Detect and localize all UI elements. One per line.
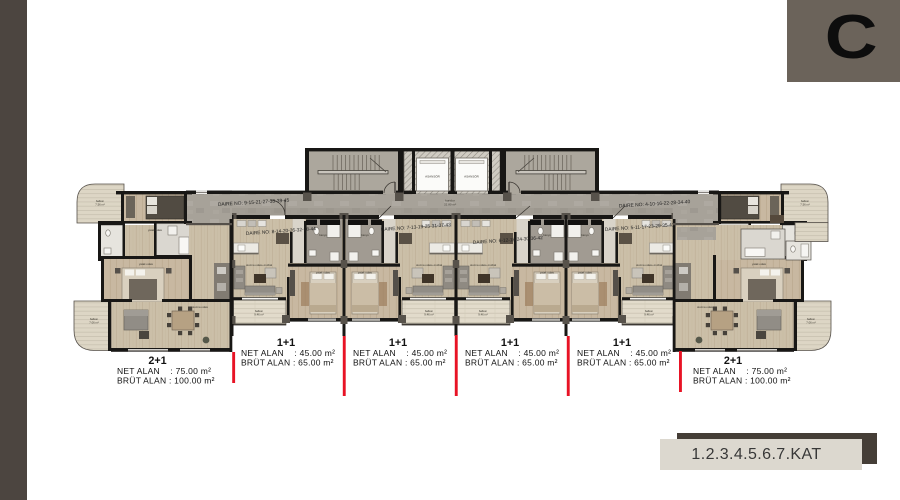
svg-text:NET ALAN : 45.00 m²: NET ALAN : 45.00 m² xyxy=(577,348,671,358)
svg-text:oturma odası+mutfak: oturma odası+mutfak xyxy=(416,263,443,267)
svg-text:yatak odası: yatak odası xyxy=(316,271,331,275)
svg-text:yatak odası: yatak odası xyxy=(148,228,163,232)
svg-text:NET ALAN : 45.00 m²: NET ALAN : 45.00 m² xyxy=(353,348,447,358)
svg-text:9.46 m²: 9.46 m² xyxy=(644,313,654,317)
svg-text:NET ALAN : 45.00 m²: NET ALAN : 45.00 m² xyxy=(241,348,335,358)
svg-text:yatak odası: yatak odası xyxy=(358,271,373,275)
svg-text:BRÜT ALAN : 65.00 m²: BRÜT ALAN : 65.00 m² xyxy=(465,358,558,368)
svg-text:banyo: banyo xyxy=(543,233,551,237)
svg-text:7.06 m²: 7.06 m² xyxy=(806,321,816,325)
svg-text:yatak odası: yatak odası xyxy=(578,271,593,275)
svg-text:BRÜT ALAN : 65.00 m²: BRÜT ALAN : 65.00 m² xyxy=(241,358,334,368)
svg-text:yatak odası: yatak odası xyxy=(540,271,555,275)
svg-text:NET ALAN : 45.00 m²: NET ALAN : 45.00 m² xyxy=(465,348,559,358)
svg-text:NET ALAN : 75.00 m²: NET ALAN : 75.00 m² xyxy=(117,366,211,376)
svg-text:9.46 m²: 9.46 m² xyxy=(478,313,488,317)
svg-text:7.56 m²: 7.56 m² xyxy=(800,203,810,207)
svg-text:BRÜT ALAN : 100.00 m²: BRÜT ALAN : 100.00 m² xyxy=(693,376,791,386)
svg-text:7.56 m²: 7.56 m² xyxy=(95,203,105,207)
svg-text:yatak odası: yatak odası xyxy=(752,262,767,266)
svg-text:banyo: banyo xyxy=(319,233,327,237)
svg-text:oturma odası+mutfak: oturma odası+mutfak xyxy=(470,263,497,267)
svg-text:oturma odası+mutfak: oturma odası+mutfak xyxy=(636,263,663,267)
svg-text:banyo: banyo xyxy=(361,233,369,237)
svg-text:BRÜT ALAN : 100.00 m²: BRÜT ALAN : 100.00 m² xyxy=(117,376,215,386)
svg-text:BRÜT ALAN : 65.00 m²: BRÜT ALAN : 65.00 m² xyxy=(577,358,670,368)
svg-text:9.46 m²: 9.46 m² xyxy=(254,313,264,317)
svg-text:BRÜT ALAN : 65.00 m²: BRÜT ALAN : 65.00 m² xyxy=(353,358,446,368)
svg-text:7.06 m²: 7.06 m² xyxy=(89,321,99,325)
svg-text:9.46 m²: 9.46 m² xyxy=(424,313,434,317)
svg-text:ASANSÖR: ASANSÖR xyxy=(425,175,441,179)
svg-text:oturma odası: oturma odası xyxy=(697,305,714,309)
svg-text:ASANSÖR: ASANSÖR xyxy=(464,175,480,179)
svg-text:NET ALAN : 75.00 m²: NET ALAN : 75.00 m² xyxy=(693,366,787,376)
svg-text:oturma odası+mutfak: oturma odası+mutfak xyxy=(246,263,273,267)
svg-text:banyo: banyo xyxy=(581,233,589,237)
svg-text:32.80 m²: 32.80 m² xyxy=(444,202,456,206)
svg-text:yatak odası: yatak odası xyxy=(139,262,154,266)
svg-text:oturma odası: oturma odası xyxy=(192,305,209,309)
